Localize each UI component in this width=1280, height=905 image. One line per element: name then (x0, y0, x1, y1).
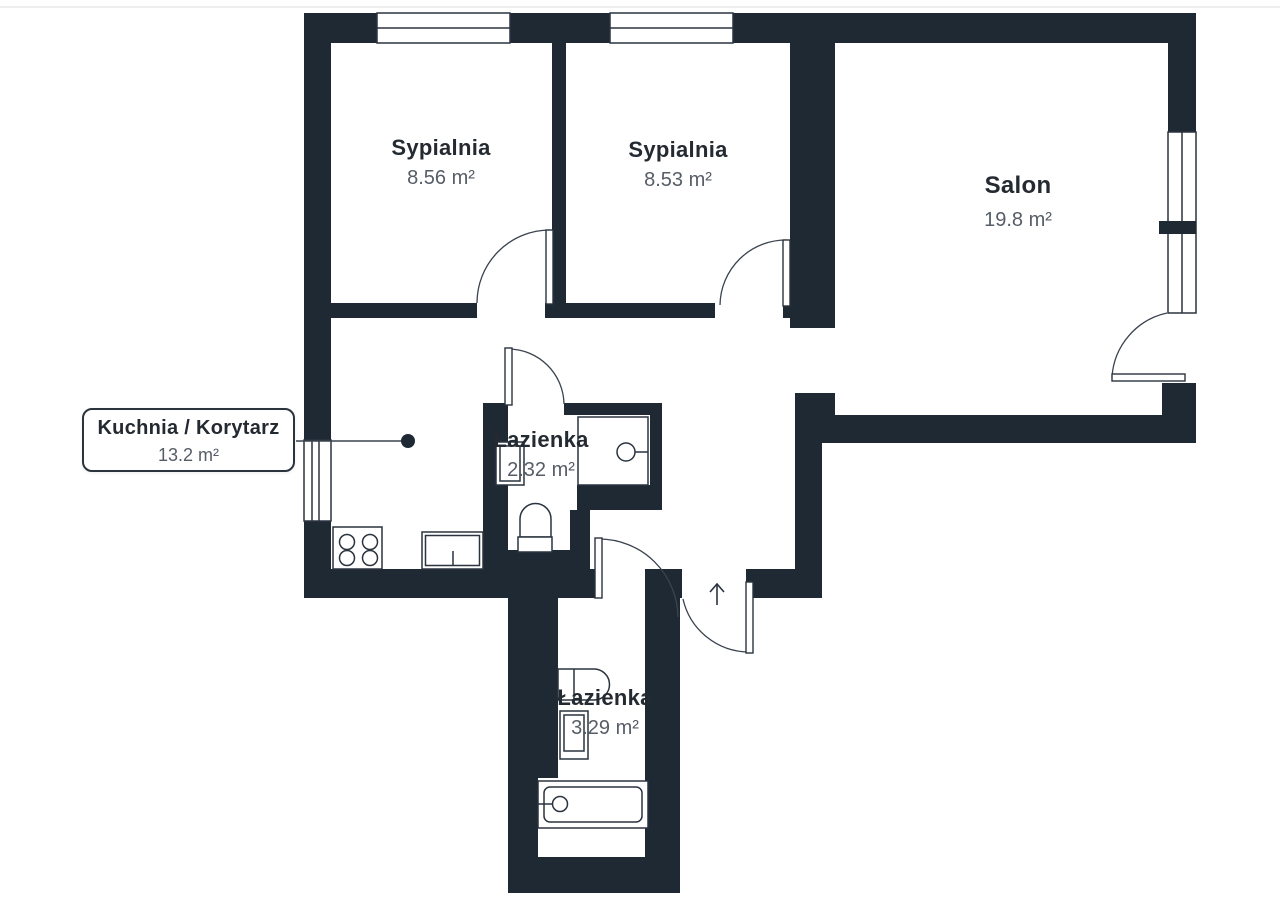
room-area: 19.8 m² (984, 202, 1052, 238)
wall-bedrooms-bottom-b (545, 303, 566, 318)
wall-bath2-bottom (508, 857, 680, 893)
wall-bath1-stub (570, 510, 590, 578)
wall-bedrooms-bottom-c (566, 303, 715, 318)
bathtub-icon (538, 781, 648, 828)
door-arc-icon (683, 599, 749, 652)
window-icon (610, 13, 733, 43)
window-icon (304, 440, 331, 521)
stove-icon (333, 527, 382, 569)
entry-arrow-icon (710, 584, 724, 605)
room-name: Łazienka (493, 425, 588, 455)
room-name: Sypialnia (391, 133, 490, 163)
toilet-icon (518, 504, 552, 553)
wall-bedrooms-bottom-a (304, 303, 477, 318)
kitchen-sink-icon (422, 532, 483, 569)
room-label-bathroom-upper: Łazienka 2.32 m² (493, 425, 588, 485)
wall-bath1-top (564, 403, 662, 415)
door-leaf-balcony (1112, 374, 1185, 381)
wall-corridor-step-block (795, 393, 835, 415)
room-area: 2.32 m² (493, 455, 588, 485)
door-leaf-bathroom-lower (595, 538, 602, 598)
wall-bedroom2-salon-divider (790, 13, 835, 328)
room-area: 8.53 m² (628, 165, 727, 195)
room-label-bathroom-lower: Łazienka 3.29 m² (557, 683, 652, 743)
wall-bedroom-divider (552, 43, 566, 318)
leader-dot-icon (401, 434, 415, 448)
wall-entry-left-chunk (645, 569, 682, 598)
door-leaf-entry (746, 582, 753, 653)
floor-plan-page: Sypialnia 8.56 m² Sypialnia 8.53 m² Salo… (0, 0, 1280, 905)
wall-bath1-bottom-right (577, 485, 662, 510)
windows (304, 13, 1196, 521)
door-leaf-bedroom-2 (783, 240, 790, 306)
door-arc-icon (720, 240, 787, 305)
wall-entry-hinge-stub (746, 569, 753, 582)
room-name: Kuchnia / Korytarz (84, 414, 293, 442)
room-name: Salon (984, 170, 1052, 202)
door-leaf-bathroom-upper (505, 348, 512, 405)
room-area: 8.56 m² (391, 163, 490, 193)
wall-bath1-right (650, 403, 662, 510)
room-name: Sypialnia (628, 135, 727, 165)
room-label-bedroom-1: Sypialnia 8.56 m² (391, 133, 490, 193)
door-arc-icon (1112, 313, 1167, 377)
wall-right-top (1168, 43, 1196, 132)
room-name: Łazienka (557, 683, 652, 713)
wall-bath2-left-upper (538, 598, 558, 778)
wall-kitchen-bottom (304, 569, 602, 598)
wall-salon-bottom (822, 415, 1196, 443)
door-arc-icon (477, 230, 550, 303)
room-label-living-room: Salon 19.8 m² (984, 170, 1052, 238)
wall-entry-band (753, 569, 822, 598)
window-icon (377, 13, 510, 43)
wall-bath2-right (645, 598, 680, 893)
door-leaf-bedroom-1 (546, 230, 553, 304)
window-mid-separator (1159, 221, 1196, 234)
wall-salon-bottom-right-block (1162, 383, 1196, 443)
wall-bath2-left (508, 598, 538, 857)
room-area: 3.29 m² (557, 713, 652, 743)
kitchen-corridor-callout: Kuchnia / Korytarz 13.2 m² (82, 408, 295, 472)
door-arc-icon (509, 349, 564, 404)
room-label-bedroom-2: Sypialnia 8.53 m² (628, 135, 727, 195)
room-area: 13.2 m² (84, 442, 293, 468)
